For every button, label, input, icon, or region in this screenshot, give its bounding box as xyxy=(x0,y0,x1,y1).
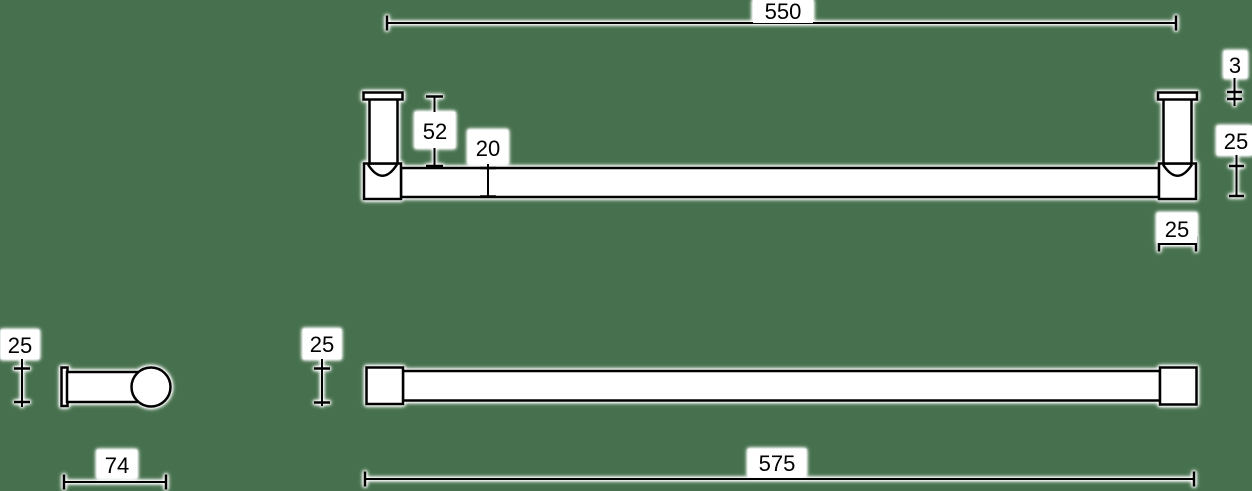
front-right-post-body xyxy=(1164,99,1192,164)
dimension-label-25-rail-height: 25 xyxy=(8,333,32,358)
dimension-label-52: 52 xyxy=(423,119,447,144)
dimension-25-post-width: 25 xyxy=(1157,213,1197,252)
front-left-post-body xyxy=(370,99,398,164)
dimension-3: 3 xyxy=(1224,51,1247,106)
dimension-label-25-post-width: 25 xyxy=(1165,217,1189,242)
dimension-25-rail-height: 25 xyxy=(1,330,39,407)
dimension-label-550: 550 xyxy=(765,0,802,24)
plan-left-end-cap xyxy=(367,368,404,405)
dimension-label-74: 74 xyxy=(105,453,129,478)
dimension-575: 575 xyxy=(365,449,1194,487)
plan-right-end-cap xyxy=(1160,368,1197,405)
dimension-550: 550 xyxy=(387,0,1176,31)
front-left-post-flange xyxy=(364,93,403,100)
technical-drawing: 550 52 20 3 xyxy=(0,0,1252,491)
side-rail-section-circle xyxy=(132,368,171,407)
dimension-label-3: 3 xyxy=(1229,53,1241,78)
front-rail xyxy=(401,168,1159,197)
dimension-52: 52 xyxy=(415,97,455,167)
plan-view: 25 575 xyxy=(303,329,1197,487)
dimension-label-575: 575 xyxy=(759,451,796,476)
dimension-label-20: 20 xyxy=(476,136,500,161)
side-arm xyxy=(67,372,140,402)
front-right-post-flange xyxy=(1158,93,1197,100)
front-view: 550 52 20 3 xyxy=(364,0,1252,252)
dimension-25-post-depth: 25 xyxy=(1217,126,1252,197)
dimension-label-25-post-depth: 25 xyxy=(1224,129,1248,154)
plan-rail xyxy=(403,371,1160,401)
dimension-label-25-end-cap: 25 xyxy=(310,332,334,357)
side-view: 25 74 xyxy=(1,330,171,490)
dimension-25-end-cap: 25 xyxy=(303,329,341,406)
dimension-74: 74 xyxy=(64,450,166,490)
